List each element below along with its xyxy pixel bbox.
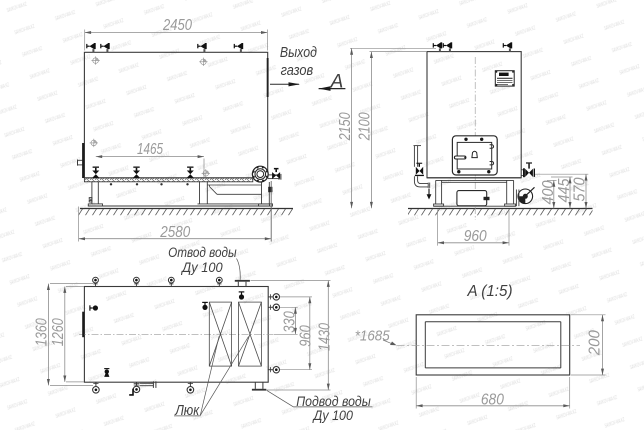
svg-text:1430: 1430: [317, 323, 334, 351]
svg-text:2450: 2450: [162, 17, 192, 34]
svg-text:Люк: Люк: [174, 403, 200, 419]
svg-text:Выход: Выход: [280, 45, 317, 61]
svg-text:200: 200: [587, 330, 604, 356]
svg-text:A (1:5): A (1:5): [467, 283, 513, 300]
svg-text:680: 680: [481, 392, 504, 409]
svg-text:*1685: *1685: [355, 328, 391, 345]
svg-text:A: A: [330, 72, 344, 93]
svg-text:Отвод воды: Отвод воды: [168, 245, 237, 260]
svg-text:330: 330: [282, 311, 299, 333]
svg-text:Ду 100: Ду 100: [312, 408, 354, 423]
svg-text:1260: 1260: [50, 318, 67, 346]
svg-text:2580: 2580: [159, 224, 190, 241]
svg-text:2100: 2100: [356, 112, 373, 141]
svg-text:2150: 2150: [337, 112, 354, 141]
svg-text:газов: газов: [281, 63, 314, 79]
svg-text:1360: 1360: [33, 318, 50, 346]
svg-text:960: 960: [298, 325, 315, 347]
svg-text:570: 570: [572, 177, 589, 201]
svg-text:Ду 100: Ду 100: [180, 260, 223, 275]
svg-text:400: 400: [540, 180, 557, 204]
svg-text:960: 960: [464, 228, 487, 245]
svg-text:1465: 1465: [137, 141, 163, 158]
